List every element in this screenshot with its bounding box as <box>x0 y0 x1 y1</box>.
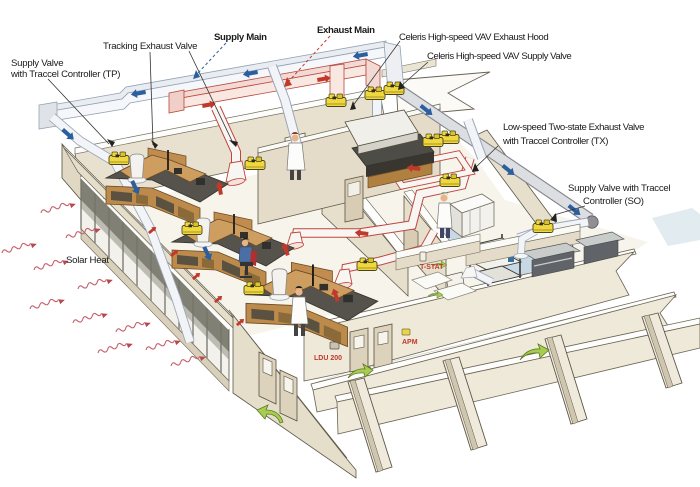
svg-text:APM: APM <box>402 339 418 346</box>
svg-text:with Traccel Controller (TP): with Traccel Controller (TP) <box>10 69 120 80</box>
svg-text:Low-speed Two-state Exhaust Va: Low-speed Two-state Exhaust Valve <box>503 122 644 133</box>
svg-text:LDU 200: LDU 200 <box>314 355 342 362</box>
svg-text:Exhaust Main: Exhaust Main <box>317 25 375 36</box>
svg-text:Supply Valve: Supply Valve <box>11 58 63 69</box>
svg-text:T-STAT: T-STAT <box>420 264 444 271</box>
svg-text:with Traccel Controller (TX): with Traccel Controller (TX) <box>502 136 608 147</box>
svg-text:Celeris High-speed VAV Exhaust: Celeris High-speed VAV Exhaust Hood <box>399 32 548 43</box>
svg-text:Supply Main: Supply Main <box>214 32 267 43</box>
svg-text:Tracking Exhaust Valve: Tracking Exhaust Valve <box>103 41 197 52</box>
svg-text:Solar Heat: Solar Heat <box>66 255 109 266</box>
svg-text:Celeris High-speed VAV Supply: Celeris High-speed VAV Supply Valve <box>427 51 571 62</box>
svg-text:Controller (SO): Controller (SO) <box>583 196 644 207</box>
svg-text:Supply Valve with Traccel: Supply Valve with Traccel <box>568 183 670 194</box>
